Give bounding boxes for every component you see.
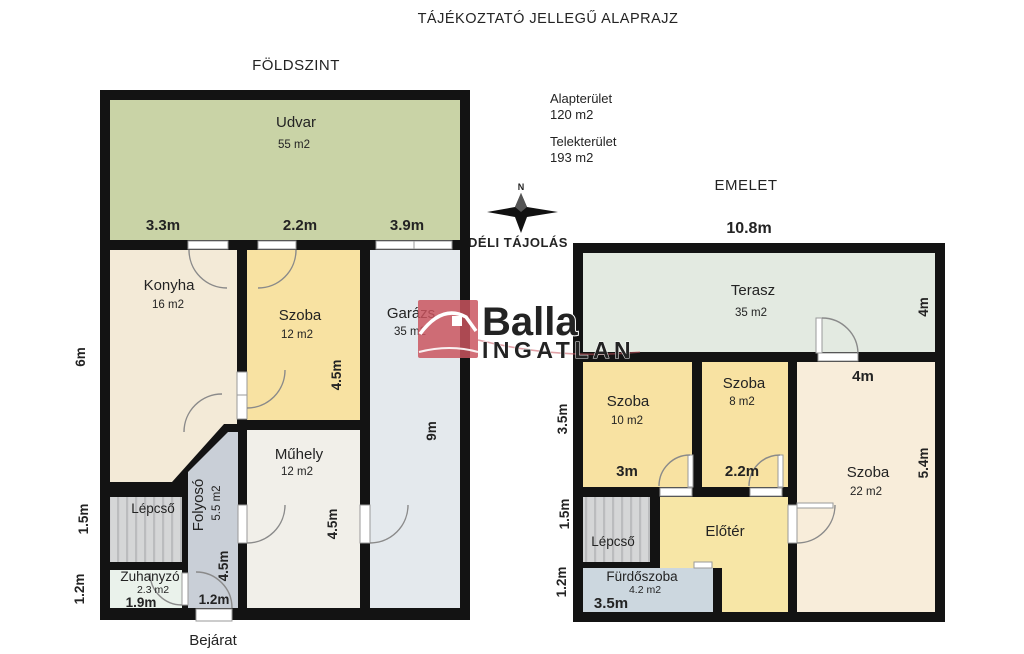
dim-terasz-height: 4m <box>916 297 931 317</box>
furdoszoba-area: 4.2 m2 <box>629 584 661 596</box>
floor-area-label: Alapterület <box>550 91 613 106</box>
upper-floor-plan: 10.8m Terasz 35 m2 Szoba 10 m2 Szoba 8 m… <box>554 220 945 622</box>
dim-garazs-height: 9m <box>424 421 439 441</box>
entrance-label: Bejárat <box>189 632 237 649</box>
dim-furdoszoba-width: 3.5m <box>594 595 628 612</box>
dim-top-1: 3.3m <box>146 217 180 234</box>
door-leaf-szoba10 <box>688 455 693 487</box>
dim-upper-left-12: 1.2m <box>554 567 569 598</box>
muhely-area: 12 m2 <box>281 466 313 478</box>
lepcso-upper-label: Lépcső <box>591 534 635 549</box>
dim-szoba22-height: 5.4m <box>916 448 931 479</box>
room-lepcso-upper <box>583 497 650 562</box>
lepcso-ground-label: Lépcső <box>131 501 175 516</box>
terasz-area: 35 m2 <box>735 307 767 319</box>
muhely-label: Műhely <box>275 446 324 463</box>
door-gap-folyoso-muhely <box>238 505 247 543</box>
door-leaf-szoba8 <box>778 455 783 487</box>
folyoso-label: Folyosó <box>190 479 207 532</box>
dim-bejarat-width: 1.2m <box>199 592 230 607</box>
compass: N DÉLI TÁJOLÁS <box>468 182 568 250</box>
compass-north-label: N <box>518 182 525 192</box>
lot-area-label: Telekterület <box>550 134 617 149</box>
dim-top-3: 3.9m <box>390 217 424 234</box>
szoba10-area: 10 m2 <box>611 415 643 427</box>
door-gap-konyha <box>188 241 228 249</box>
logo-house-window-icon <box>452 316 462 326</box>
ground-floor-plan: Udvar 55 m2 Konyha 16 m2 Szoba 12 m2 Gar… <box>72 90 470 649</box>
dim-szoba22-top: 4m <box>852 368 874 385</box>
dim-szoba-height: 4.5m <box>329 360 344 391</box>
szoba8-label: Szoba <box>723 375 766 392</box>
door-gap-szoba8 <box>750 488 782 496</box>
eloter-label: Előtér <box>705 523 744 540</box>
dim-left-12m: 1.2m <box>72 574 87 605</box>
door-leaf-szoba22 <box>797 503 833 508</box>
upper-floor-title: EMELET <box>714 177 777 194</box>
door-gap-szoba10 <box>660 488 692 496</box>
area-info: Alapterület 120 m2 Telekterület 193 m2 <box>550 91 617 165</box>
door-gap-bejarat <box>196 609 232 621</box>
door-gap-szoba <box>258 241 296 249</box>
dim-upper-left-35: 3.5m <box>555 404 570 435</box>
szoba10-label: Szoba <box>607 393 650 410</box>
dim-upper-left-15: 1.5m <box>557 499 572 530</box>
udvar-area: 55 m2 <box>278 139 310 151</box>
szoba-ground-area: 12 m2 <box>281 329 313 341</box>
door-gap-terasz <box>818 353 858 361</box>
dim-upper-width: 10.8m <box>726 220 771 237</box>
door-gap-szoba-folyoso <box>237 395 247 419</box>
dim-left-15m: 1.5m <box>76 504 91 535</box>
furdoszoba-label: Fürdőszoba <box>606 569 678 584</box>
floorplan-drawing: TÁJÉKOZTATÓ JELLEGŰ ALAPRAJZ FÖLDSZINT E… <box>0 0 1024 654</box>
dim-szoba8-width: 2.2m <box>725 463 759 480</box>
door-gap-furdoszoba <box>694 562 712 568</box>
dim-left-6m: 6m <box>73 347 88 367</box>
floorplan-page: TÁJÉKOZTATÓ JELLEGŰ ALAPRAJZ FÖLDSZINT E… <box>0 0 1024 654</box>
szoba8-area: 8 m2 <box>729 396 755 408</box>
konyha-label: Konyha <box>144 277 196 294</box>
door-leaf-terasz <box>816 318 822 353</box>
dim-zuhanyzo-width: 1.9m <box>126 595 157 610</box>
terasz-label: Terasz <box>731 282 775 299</box>
lot-area-value: 193 m2 <box>550 150 593 165</box>
dim-folyoso-height: 4.5m <box>216 551 231 582</box>
door-gap-szoba22 <box>788 505 797 543</box>
ground-floor-title: FÖLDSZINT <box>252 56 340 74</box>
szoba22-area: 22 m2 <box>850 486 882 498</box>
szoba22-label: Szoba <box>847 464 890 481</box>
logo-sub-text: INGATLAN <box>482 337 635 363</box>
szoba-ground-label: Szoba <box>279 307 322 324</box>
floor-area-value: 120 m2 <box>550 107 593 122</box>
konyha-area: 16 m2 <box>152 299 184 311</box>
door-gap-zuhanyzo <box>182 573 188 605</box>
dim-muhely-height: 4.5m <box>325 509 340 540</box>
dim-szoba10-width: 3m <box>616 463 638 480</box>
door-gap-muhely-garazs <box>360 505 370 543</box>
udvar-label: Udvar <box>276 114 316 131</box>
orientation-label: DÉLI TÁJOLÁS <box>468 235 568 250</box>
zuhanyzo-label: Zuhanyzó <box>120 569 179 584</box>
folyoso-area: 5.5 m2 <box>211 485 223 520</box>
room-terasz <box>583 253 935 352</box>
dim-top-2: 2.2m <box>283 217 317 234</box>
page-title: TÁJÉKOZTATÓ JELLEGŰ ALAPRAJZ <box>418 10 679 27</box>
